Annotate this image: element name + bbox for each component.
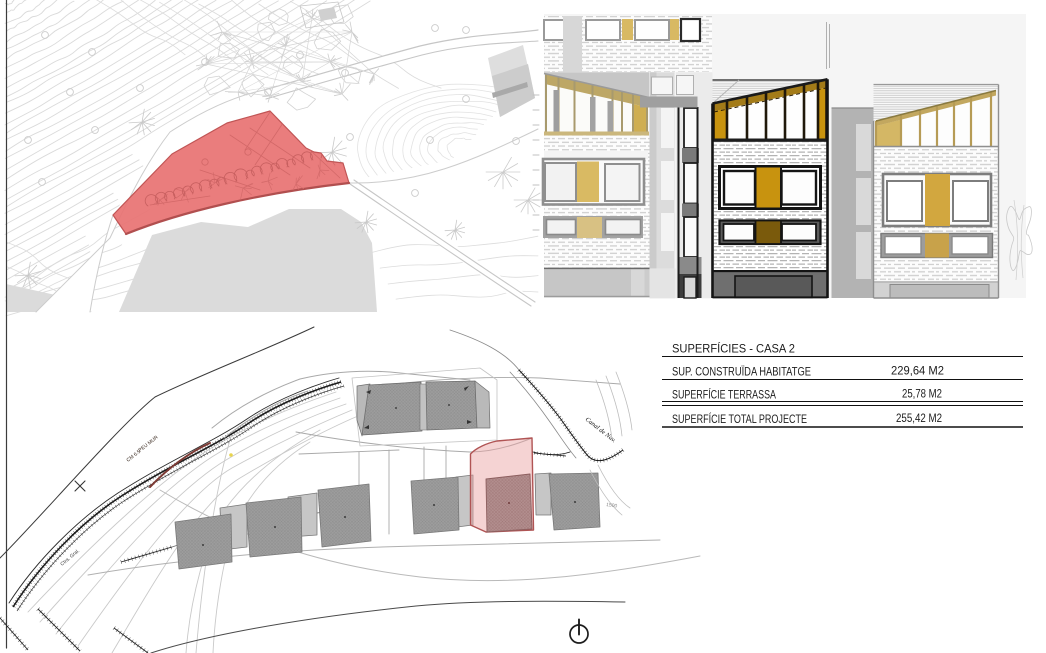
svg-text:SUP. CONSTRUÏDA HABITATGE: SUP. CONSTRUÏDA HABITATGE	[672, 367, 811, 379]
svg-text:SUPERFÍCIES - CASA 2: SUPERFÍCIES - CASA 2	[672, 343, 795, 356]
svg-text:229,64 M2: 229,64 M2	[891, 366, 944, 378]
svg-text:SUPERFÍCIE TOTAL PROJECTE: SUPERFÍCIE TOTAL PROJECTE	[672, 413, 807, 426]
svg-text:255,42 M2: 255,42 M2	[896, 413, 942, 425]
svg-text:25,78 M2: 25,78 M2	[902, 389, 942, 401]
svg-text:SUPERFÍCIE TERRASSA: SUPERFÍCIE TERRASSA	[672, 389, 776, 402]
